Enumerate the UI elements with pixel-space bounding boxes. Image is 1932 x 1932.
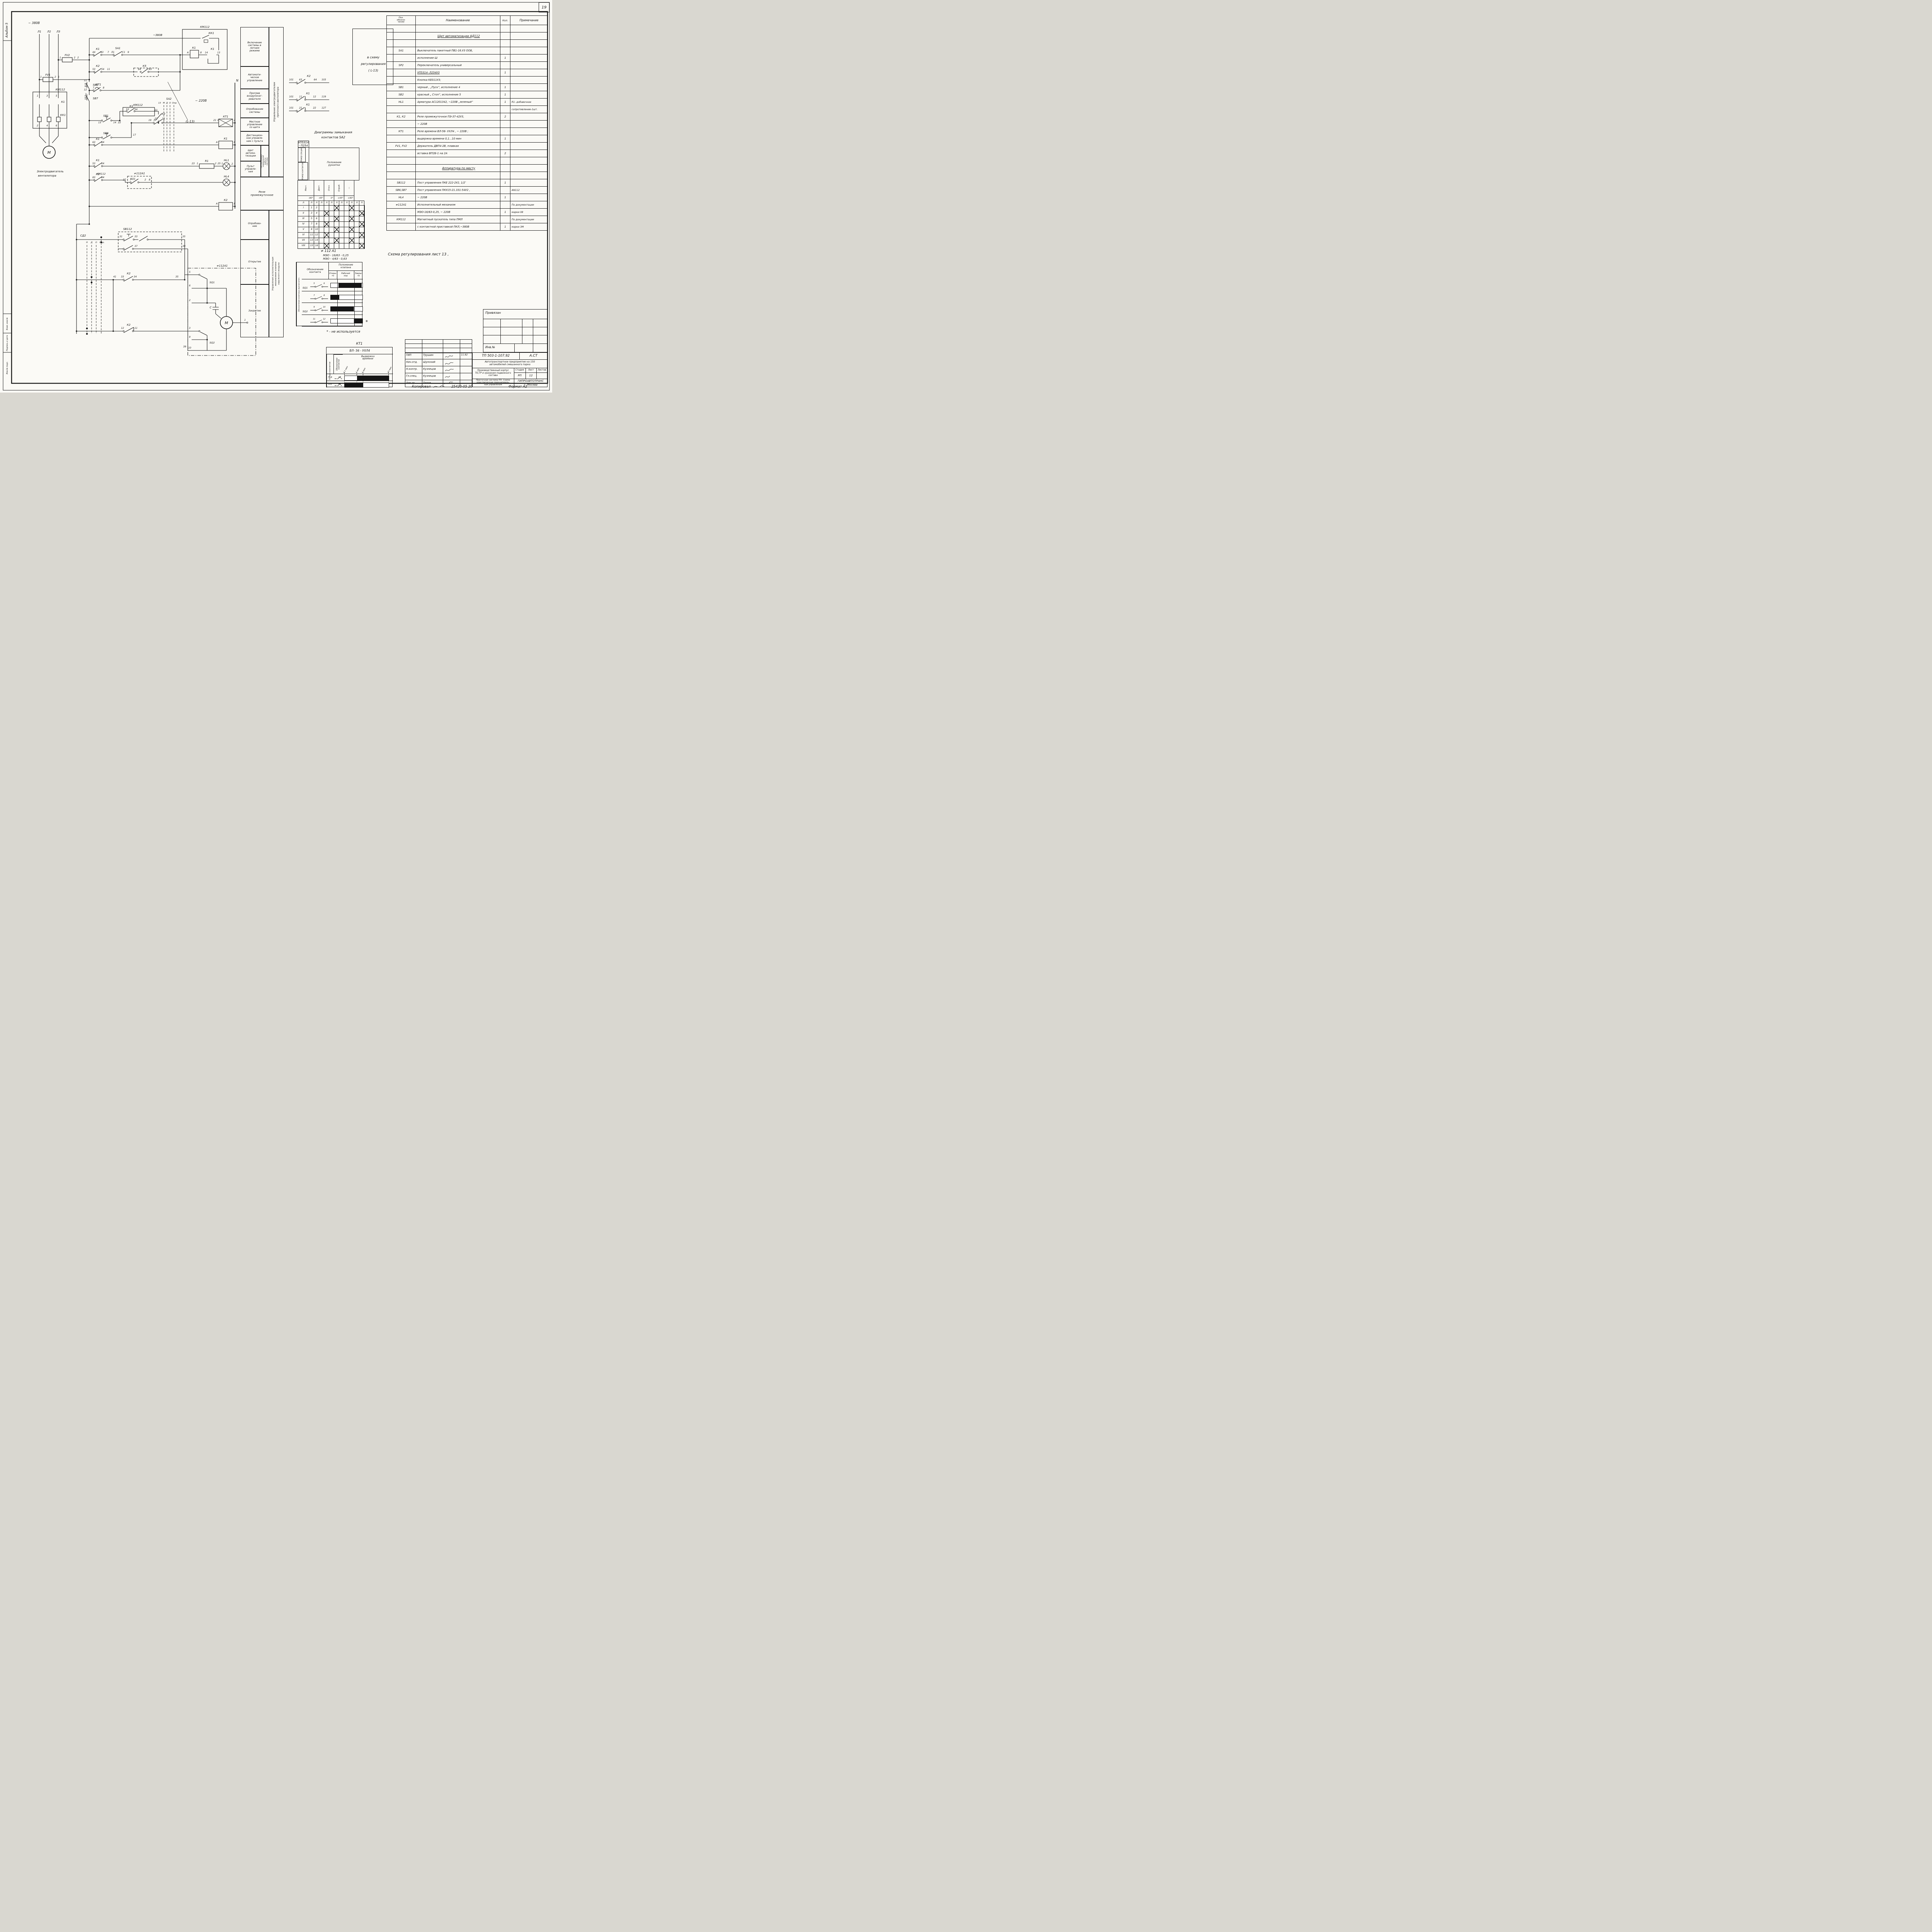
- km112-relay-box: [182, 29, 227, 70]
- schematic-label: 1: [40, 76, 42, 78]
- stage-header: Стадия: [514, 368, 526, 372]
- spec-row: HL1Арматура АС1201342, ~220В „зеленый“1R…: [387, 99, 548, 106]
- spec-row: выдержка времени 0,1...10 мин1: [387, 135, 548, 143]
- schematic-label: 7: [107, 51, 109, 54]
- spec-name: [416, 172, 500, 179]
- schematic-label: SB2: [93, 83, 98, 87]
- k2-coil: [219, 202, 233, 210]
- spec-row: ~ 220В: [387, 121, 548, 128]
- schematic-label: 37: [134, 245, 138, 248]
- sa2-sub: Л: [298, 201, 309, 205]
- spec-row: исполнение Ш1: [387, 54, 548, 62]
- schematic-label: 35: [182, 235, 185, 238]
- kt1-row-label: 3-5: [327, 381, 333, 388]
- spec-qty: [500, 25, 510, 32]
- spec-note: [510, 172, 548, 179]
- sa2-pos-name: —: [344, 180, 354, 196]
- sa2-rot-cont: Номер контактов: [298, 162, 308, 180]
- schematic-label: 27: [123, 179, 126, 181]
- k1-coil: [190, 50, 199, 58]
- schematic-label: 8: [149, 179, 150, 181]
- spec-row: [387, 157, 548, 165]
- schematic-label: К1: [96, 48, 99, 51]
- spec-pos: [387, 40, 416, 47]
- mode-block-test: Опробование системы: [240, 104, 269, 118]
- schematic-label: 64: [314, 78, 317, 81]
- spec-qty: [500, 157, 510, 165]
- schematic-label: 64: [138, 68, 141, 71]
- sa2-contact: 16: [314, 243, 319, 248]
- spec-row: FV1, FV2Держатель ДВП4-2В, плавкая: [387, 143, 548, 150]
- schematic-label: SA1: [115, 47, 121, 50]
- schematic-label: 1: [58, 76, 60, 78]
- spec-row: SB112Пост управления ПКЕ 222-2У2, 1/2″1: [387, 179, 548, 187]
- fuse-fv2: [62, 58, 72, 62]
- schematic-label: 1: [217, 119, 219, 122]
- spec-pos: [387, 172, 416, 179]
- sa2-mark-cell: [329, 238, 334, 243]
- spec-qty: [500, 187, 510, 194]
- schematic-label: 25: [218, 162, 221, 165]
- schematic-label: 8: [234, 202, 235, 205]
- spec-row: SB2красный „ Стоп“, исполнение 51: [387, 91, 548, 99]
- meo-star: *: [366, 319, 368, 325]
- sa2-contact: 1: [309, 205, 314, 211]
- spec-name: ~ 220В: [416, 121, 500, 128]
- spec-row: SB6,SB7Пост управления ПКУ15-21.331-54У2…: [387, 187, 548, 194]
- schematic-label: 9: [189, 336, 190, 338]
- spec-qty: 1: [500, 194, 510, 201]
- sa2-mark-cell: [364, 238, 365, 243]
- meo-title: ≠ 112 А1: [309, 249, 348, 253]
- sa2-mark-cell: [344, 238, 349, 243]
- drawing-title: Приточная система П3. Схема электрическа…: [472, 379, 514, 387]
- schematic-label: 1: [37, 95, 38, 97]
- schematic-label: 54: [101, 68, 104, 71]
- sa2-pos-angle: +90°: [344, 196, 354, 201]
- schematic-label: М: [225, 321, 228, 325]
- sa2-mark-cell: [344, 205, 349, 211]
- spec-note: [510, 194, 548, 201]
- meo-contact-symbol: 1112: [310, 317, 328, 324]
- sa2-mark-cell: [354, 205, 359, 211]
- sa2-mark-cell: [344, 211, 349, 216]
- schematic-label: А: [187, 51, 189, 54]
- role-name: Титов: [423, 381, 431, 384]
- schematic-label: КМ112: [133, 104, 143, 107]
- spec-qty: 1: [500, 84, 510, 91]
- kt1-bar-segment: [345, 383, 363, 387]
- spec-name: Реле промежуточное ПЭ-37-42У3,: [416, 113, 500, 121]
- spec-pos: К1, К2: [387, 113, 416, 121]
- sa2-mark-cell: [339, 227, 344, 232]
- role-title: Н.контр.: [406, 367, 418, 371]
- schematic-label: 2: [234, 119, 235, 122]
- sa2-mark-cell: [319, 211, 324, 216]
- meo-note: * - не используется: [327, 330, 360, 334]
- mode-block-auto: Автомати- ческое управление: [240, 66, 269, 89]
- sa2-mark-cell: [319, 221, 324, 227]
- sa2-mark-cell: [339, 238, 344, 243]
- sa2-mark-cell: [329, 232, 334, 238]
- schematic-label: 7: [93, 87, 94, 89]
- sa2-contact: 14: [314, 238, 319, 243]
- meo-bar-segment: [331, 295, 339, 299]
- mode-block-test2: Опробова- ние: [240, 210, 269, 240]
- sa2-mark-cell: [349, 232, 354, 238]
- schematic-label: КТ1: [223, 115, 228, 118]
- schematic-label: К2: [127, 272, 131, 275]
- sa2-sub: П: [339, 201, 344, 205]
- schematic-label: К1: [96, 159, 99, 162]
- schematic-label: К1: [129, 105, 133, 108]
- meo-contact-symbol: 910: [310, 305, 328, 312]
- kt1-scale: 0,1 мин3 мин5 мин10 мин: [343, 361, 393, 374]
- kt1-model: ВЛ- 56 - УХЛ4: [327, 347, 393, 354]
- sa2-contact: 4: [314, 211, 319, 216]
- spec-qty: 1: [500, 179, 510, 187]
- spec-pos: [387, 135, 416, 143]
- spec-row: вставка ВП2Б-1 на 2А2: [387, 150, 548, 157]
- spec-note: [510, 69, 548, 77]
- spec-note: [510, 32, 548, 40]
- doc-code: А.СТ: [519, 352, 548, 359]
- spec-row: МЭО-16/63-0,25, ~ 220В1марки 08: [387, 209, 548, 216]
- sa2-contact: 9: [309, 227, 314, 232]
- sa2-mark-cell: [319, 205, 324, 211]
- schematic-label: 101: [289, 95, 293, 98]
- schematic-label: 64: [101, 141, 104, 144]
- sa2-mark-cell: [344, 216, 349, 221]
- sa2-sub: П: [359, 201, 364, 205]
- spec-header-name: Наименование: [416, 16, 500, 25]
- sa2-contact: 11: [309, 232, 314, 238]
- schematic-label: 22: [155, 117, 158, 120]
- stage-value: РП: [514, 372, 526, 379]
- schematic-label: О: [169, 102, 171, 104]
- sa2-mark-cell: [359, 238, 364, 243]
- spec-qty: 1: [500, 135, 510, 143]
- sa2-mark-cell: [359, 205, 364, 211]
- sa2-mark-cell: [334, 232, 339, 238]
- schematic-label: SB112: [123, 228, 132, 231]
- schematic-label: К1: [306, 103, 310, 106]
- spec-name: [416, 40, 500, 47]
- sa2-pos-name: Откл.: [324, 180, 334, 196]
- spec-pos: SB1: [387, 84, 416, 91]
- power-wires: [39, 34, 219, 224]
- sheets-value: [536, 372, 548, 379]
- schematic-label: С: [210, 306, 212, 309]
- sa2-sec: VIII: [298, 243, 309, 248]
- sa2-mark-cell: [364, 232, 365, 238]
- schematic-label: КМ112: [200, 26, 210, 29]
- spec-pos: SA1: [387, 47, 416, 54]
- spec-pos: [387, 32, 416, 40]
- schematic-label: 19: [148, 119, 151, 122]
- schematic-label: 2: [189, 299, 190, 302]
- schematic-label: А: [216, 202, 218, 205]
- schematic-label: 4: [46, 124, 48, 127]
- role-date: 11.92: [461, 354, 468, 356]
- role-row: ГИПТрушин11.92: [405, 352, 472, 359]
- mode-block-local: Местное управление со щита: [240, 118, 269, 131]
- spec-note: [510, 121, 548, 128]
- meo-bar-segment: [354, 319, 362, 323]
- spec-qty: 1: [500, 223, 510, 231]
- schematic-label: 12: [313, 95, 316, 98]
- spec-pos: [387, 25, 416, 32]
- sa2-mark-cell: [339, 243, 344, 248]
- schematic-label: 1: [221, 162, 223, 165]
- schematic-label: 54: [134, 108, 138, 111]
- sa2-pos-name: Опроб.: [334, 180, 344, 196]
- kt1-row: 7- 8: [327, 374, 393, 381]
- role-title: Зав.гр.: [406, 381, 415, 384]
- sa2-switch-lines: [87, 105, 174, 334]
- component-boxes: [33, 29, 256, 355]
- schematic-label: Л2: [47, 30, 51, 33]
- spec-name: Держатель ДВП4-2В, плавкая: [416, 143, 500, 150]
- kt1-contact-symbol: [333, 374, 343, 381]
- schematic-label: К1: [61, 100, 65, 104]
- schematic-label: 11: [134, 327, 138, 330]
- spec-note: [510, 165, 548, 172]
- schematic-label: 2: [54, 76, 56, 78]
- schematic-label: 22: [313, 107, 316, 109]
- sa2-grid: УП5314 - П254Номер секцииНомер контактов…: [298, 141, 365, 249]
- schematic-label: 5: [189, 271, 190, 274]
- sa2-mark-cell: [334, 205, 339, 211]
- schematic-label: N: [236, 79, 238, 82]
- schematic-label: 21: [155, 109, 158, 112]
- spec-note: [510, 40, 548, 47]
- sa2-mark-cell: [339, 221, 344, 227]
- schematic-label: 10: [188, 347, 191, 349]
- spec-name: вставка ВП2Б-1 на 2А: [416, 150, 500, 157]
- schematic-label: К5: [143, 65, 146, 68]
- spec-qty: [500, 77, 510, 84]
- spec-row: Кнопка КЕ011У3;: [387, 77, 548, 84]
- schematic-label: 8: [103, 87, 104, 89]
- schematic-label: 3: [46, 95, 48, 97]
- spec-row: КМ112Магнитный пускатель типа ПМЛПо доку…: [387, 216, 548, 223]
- starter-power-box: [33, 92, 67, 128]
- sa2-rot-sec: Номер секции: [298, 148, 306, 162]
- sa2-mark-cell: [329, 243, 334, 248]
- spec-pos: [387, 165, 416, 172]
- sa2-sub: П: [309, 201, 314, 205]
- schematic-label: СД2: [80, 234, 86, 237]
- meo-bar: [330, 318, 363, 323]
- kt1-bar-segment: [357, 376, 389, 380]
- schematic-label: Инв.№ подл.: [6, 362, 9, 374]
- spec-pos: [387, 121, 416, 128]
- spec-note: По документации: [510, 201, 548, 209]
- strip-signal: Сигнализация нормальной работы системы: [261, 145, 269, 177]
- sheet-number: 19: [542, 5, 547, 10]
- meo-sub-closed: Закры- то: [354, 271, 363, 279]
- spec-row: с контактной приставкой ПКЛ,~380В1марки …: [387, 223, 548, 231]
- schematic-label: 63: [149, 68, 152, 71]
- role-name: Кузнецов: [423, 374, 436, 378]
- lamp-crosses: [224, 164, 229, 185]
- schematic-label: К1: [192, 46, 196, 49]
- schematic-label: 63: [92, 141, 95, 144]
- schematic-label: К1: [224, 137, 227, 140]
- spec-pos: [387, 150, 416, 157]
- sa2-contact: 3: [309, 211, 314, 216]
- meo-rot-header: Обозначения конечных выключател.: [296, 262, 302, 327]
- sa2-mark-cell: [359, 232, 364, 238]
- schematic-label: К2: [307, 75, 311, 78]
- sa2-mark-cell: [324, 227, 329, 232]
- sa2-model: УП5314 - П254: [298, 141, 309, 148]
- spec-table: Поз. обозна- чение Наименование Кол. При…: [386, 15, 548, 231]
- sa2-mark-cell: [324, 211, 329, 216]
- sa2-mark-cell: [349, 238, 354, 243]
- svg-text:8: 8: [323, 294, 325, 297]
- sa2-pos-angle: -45°: [314, 196, 324, 201]
- schematic-label: А: [216, 141, 218, 144]
- spec-note: По документации: [510, 216, 548, 223]
- sa2-sec: VI: [298, 232, 309, 238]
- sa2-mark-cell: [334, 216, 339, 221]
- schematic-label: Электродвигатель: [36, 170, 63, 173]
- svg-text:11: 11: [313, 318, 315, 320]
- schematic-label: 14: [205, 51, 208, 54]
- schematic-label: FV1: [45, 73, 50, 77]
- schematic-label: 11: [107, 68, 110, 71]
- role-title: Гл.спец.: [406, 374, 417, 378]
- mode-block-remote: Дистанцион- ное управле- ние с пульта: [240, 131, 269, 145]
- schematic-label: 33: [134, 235, 138, 238]
- schematic-label: SQ2: [209, 341, 214, 344]
- spec-note: [510, 54, 548, 62]
- spec-pos: ≠112А1: [387, 201, 416, 209]
- schematic-label: 2: [74, 56, 75, 59]
- schematic-label: Д: [166, 102, 168, 104]
- kt1-rows: 7- 83-5: [327, 374, 393, 388]
- spec-row: SB1черный , „Пуск“, исполнение 41: [387, 84, 548, 91]
- spec-name: Арматура АС1201342, ~220В „зеленый“: [416, 99, 500, 106]
- meo-model-1: МЭО - 16/63 - 0,25: [323, 254, 349, 257]
- sa2-mark-cell: [324, 238, 329, 243]
- spec-pos: [387, 69, 416, 77]
- kt1-bar: [344, 376, 389, 381]
- kt1-title: КТ1: [344, 342, 375, 346]
- schematic-label: SQ1: [209, 281, 214, 284]
- schematic-label: С1: [122, 51, 125, 54]
- kt1-tick-label: 5 мин: [362, 367, 366, 374]
- meo-bar-segment: [331, 307, 354, 311]
- role-row: Н.контр.Кузнецов: [405, 366, 472, 373]
- spec-name: Выключатель пакетный ПВ1-16.У3 ООБ,: [416, 47, 500, 54]
- sa2-mark-cell: [364, 205, 365, 211]
- schematic-label: 53: [126, 108, 129, 111]
- sa2-mark-cell: [324, 205, 329, 211]
- schematic-label: 2: [77, 56, 79, 59]
- spec-note: [510, 84, 548, 91]
- spec-name: [416, 106, 500, 113]
- spec-row: SA1Выключатель пакетный ПВ1-16.У3 ООБ,: [387, 47, 548, 54]
- schematic-label: 12: [84, 88, 87, 91]
- sa2-contact: 10: [314, 227, 319, 232]
- junction-dots: [39, 54, 236, 340]
- sa2-mark-cell: [354, 243, 359, 248]
- resistor-r1: [199, 164, 214, 168]
- sa2-mark-cell: [334, 238, 339, 243]
- spec-row: Щит автоматизации АД112: [387, 32, 548, 40]
- schematic-label: 6: [56, 124, 57, 127]
- spec-name: Пост управления ПКЕ 222-2У2, 1/2″: [416, 179, 500, 187]
- strip-valve-control: Управление исполнительным механизмом кла…: [269, 210, 284, 337]
- drawing-sheet: ~ 380ВЛ1Л2Л31FV2221FV121КМ112135К1КК1246…: [0, 0, 552, 393]
- role-name: Шунский: [423, 361, 435, 364]
- meo-table: Обозначения конечных выключател. Обознач…: [296, 262, 362, 326]
- spec-qty: [500, 32, 510, 40]
- spec-qty: 2: [500, 150, 510, 157]
- spec-name: Переключатель универсальный: [416, 62, 500, 69]
- kt1-coil-cross: [219, 119, 233, 127]
- mode-block-panel: Щит автома- тизации: [240, 145, 261, 161]
- schematic-label: ~380В: [153, 34, 162, 37]
- mode-block-heat: Прогрев воздухонаг- ревателя: [240, 89, 269, 104]
- spec-name: Пост управления ПКУ15-21.331-54У2 ,: [416, 187, 500, 194]
- sa2-sub: Л: [314, 201, 319, 205]
- sa2-mark-cell: [354, 211, 359, 216]
- control-wires: [89, 55, 235, 206]
- sa2-contact: 15: [309, 243, 314, 248]
- schematic-label: 1: [60, 56, 61, 59]
- role-row: Гл.спец.Кузнецов: [405, 373, 472, 380]
- spec-qty: [500, 143, 510, 150]
- spec-pos: КТ1: [387, 128, 416, 135]
- schematic-label: ~ 380В: [28, 21, 40, 25]
- mode-block-console: Пульт управле- ния: [240, 161, 261, 177]
- role-title: ГИП: [406, 354, 412, 357]
- spec-name: Аппаратура по месту: [416, 165, 500, 172]
- kt1-rot-2: Обозначение контактов: [333, 354, 343, 374]
- spec-note: [510, 157, 548, 165]
- sa2-mark-cell: [319, 243, 324, 248]
- schematic-label: 8: [200, 51, 202, 54]
- spec-pos: [387, 106, 416, 113]
- spec-qty: [500, 62, 510, 69]
- svg-text:5: 5: [313, 282, 315, 285]
- spec-name: ~ 220В: [416, 194, 500, 201]
- sa2-contact: 13: [309, 238, 314, 243]
- spec-pos: HL4: [387, 194, 416, 201]
- schematic-label: 22: [118, 121, 121, 124]
- meo-model-2: МЭО - 4/63 - 0,63: [323, 257, 347, 260]
- schematic-label: вентилятора: [38, 174, 56, 177]
- schematic-label: КК1: [60, 114, 66, 117]
- meo-contact-symbol: 56: [310, 282, 328, 289]
- spec-pos: [387, 77, 416, 84]
- sa2-mark-cell: [329, 221, 334, 227]
- spec-name: МЭО-16/63-0,25, ~ 220В: [416, 209, 500, 216]
- schematic-label: SB6: [103, 132, 109, 135]
- schematic-label: К1: [96, 138, 99, 141]
- spec-pos: [387, 157, 416, 165]
- sa2-mark-cell: [329, 227, 334, 232]
- schematic-label: 41: [113, 276, 116, 278]
- sheet-header: Лист: [526, 368, 536, 372]
- svg-text:7: 7: [313, 294, 315, 297]
- sa2-mark-cell: [349, 205, 354, 211]
- spec-name: черный , „Пуск“, исполнение 4: [416, 84, 500, 91]
